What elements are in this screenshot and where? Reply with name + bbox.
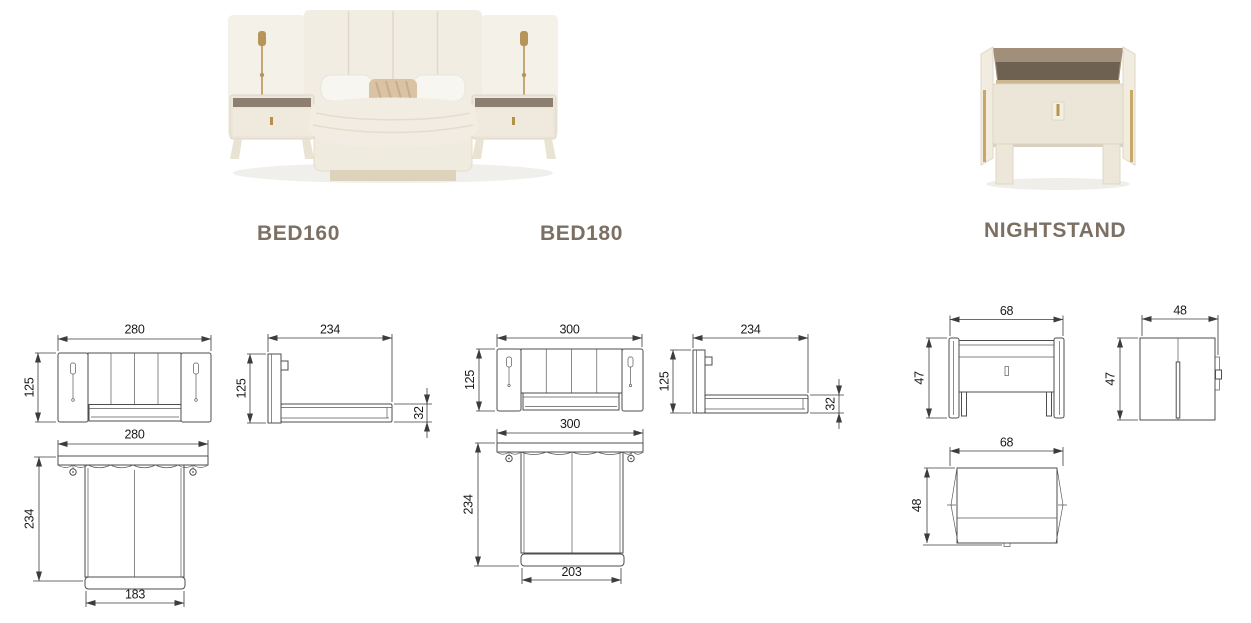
nightstand-top-depth-value: 48 xyxy=(910,499,924,513)
bed160-top-view xyxy=(58,456,208,589)
bed180-front-height-value: 125 xyxy=(463,370,477,390)
nightstand-top-width-value: 68 xyxy=(1000,436,1014,450)
nightstand-side-view xyxy=(1140,338,1222,420)
nightstand-front-height-value: 47 xyxy=(913,371,927,385)
nightstand-top-shelf xyxy=(993,48,1123,84)
nightstand-top-view xyxy=(947,468,1067,547)
nightstand-front-width-value: 68 xyxy=(1000,304,1014,318)
bed180-side-base-height-value: 32 xyxy=(824,397,838,411)
bed-nightstand-right xyxy=(472,95,556,159)
bed160-side-view xyxy=(268,354,392,423)
bed180-top-width-value: 300 xyxy=(560,417,580,431)
bed160-front-height-value: 125 xyxy=(23,377,37,397)
bed160-front-width-value: 280 xyxy=(125,323,145,337)
bed160-side-height-value: 125 xyxy=(235,378,249,398)
bed180-side-height-value: 125 xyxy=(658,371,672,391)
bed180-drawings: 300 125 234 125 32 xyxy=(460,300,855,592)
bed160-top-depth-value: 234 xyxy=(23,509,37,529)
nightstand-drawings: 68 47 48 47 xyxy=(900,300,1235,555)
nightstand-side-height-value: 47 xyxy=(1104,372,1118,386)
bed180-side-view xyxy=(693,350,808,413)
bed180-front-width-value: 300 xyxy=(560,323,580,337)
bed160-top-width-value: 280 xyxy=(125,428,145,442)
bed160-top-base-width-value: 183 xyxy=(125,588,145,602)
bed180-side-depth-value: 234 xyxy=(741,323,761,337)
bed160-front-view xyxy=(58,353,211,422)
nightstand-label: NIGHTSTAND xyxy=(984,219,1126,243)
nightstand-front-view xyxy=(949,338,1064,418)
bed180-top-depth-value: 234 xyxy=(462,494,476,514)
bed160-side-depth-value: 234 xyxy=(320,323,340,337)
bed180-label: BED180 xyxy=(540,222,623,246)
bed-plinth xyxy=(330,170,456,181)
bed180-front-view xyxy=(497,349,643,411)
bed160-label: BED160 xyxy=(257,222,340,246)
nightstand-drawer xyxy=(993,84,1123,144)
bed180-top-view xyxy=(497,443,643,566)
bed-photo xyxy=(218,5,568,190)
bed160-side-base-height-value: 32 xyxy=(412,406,426,420)
bed-body xyxy=(308,75,478,181)
bed180-top-base-width-value: 203 xyxy=(562,565,582,579)
nightstand-photo xyxy=(963,38,1153,193)
bed-nightstand-left xyxy=(230,95,314,159)
spec-sheet: BED160 BED180 NIGHTSTAND xyxy=(0,0,1251,623)
bed160-drawings: 280 125 234 125 32 xyxy=(20,300,445,620)
nightstand-side-depth-value: 48 xyxy=(1173,304,1187,318)
